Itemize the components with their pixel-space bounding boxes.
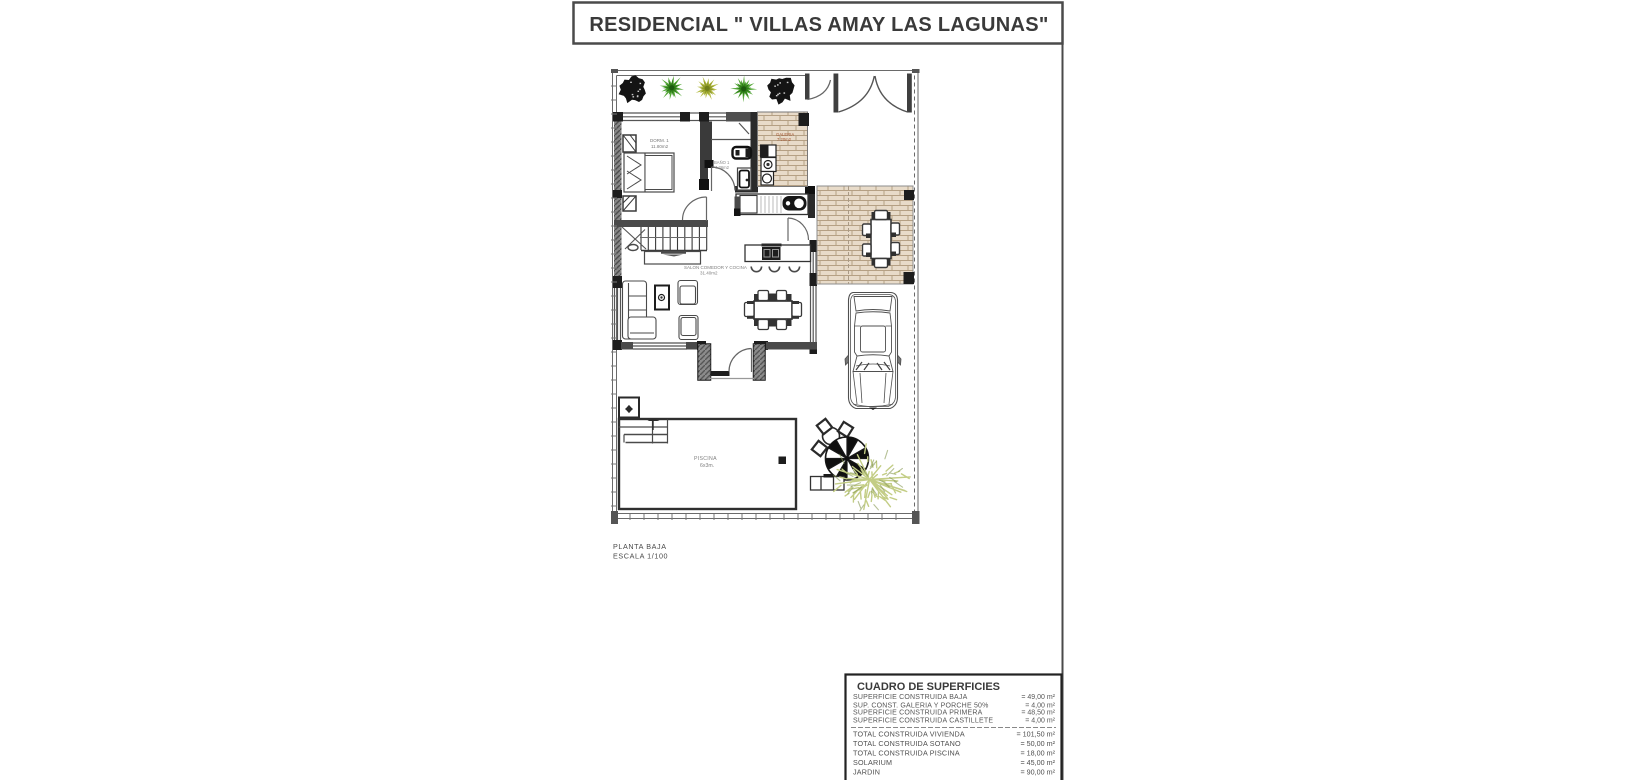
svg-text:SUPERFICIE CONSTRUIDA BAJA: SUPERFICIE CONSTRUIDA BAJA xyxy=(853,694,968,701)
svg-text:= 90,00 m²: = 90,00 m² xyxy=(1020,768,1055,777)
svg-text:= 49,00 m²: = 49,00 m² xyxy=(1021,694,1055,701)
svg-text:PLANTA BAJA: PLANTA BAJA xyxy=(613,542,667,551)
svg-text:31.40m2: 31.40m2 xyxy=(700,271,718,276)
svg-text:= 18,00 m²: = 18,00 m² xyxy=(1020,749,1055,758)
svg-text:SALON COMEDOR Y COCINA: SALON COMEDOR Y COCINA xyxy=(684,265,747,270)
svg-text:SUPERFICIE CONSTRUIDA CASTILLE: SUPERFICIE CONSTRUIDA CASTILLETE xyxy=(853,718,993,725)
svg-text:TOTAL CONSTRUIDA SOTANO: TOTAL CONSTRUIDA SOTANO xyxy=(853,739,961,748)
svg-text:= 4,00 m²: = 4,00 m² xyxy=(1025,718,1055,725)
svg-text:6x3m.: 6x3m. xyxy=(700,463,714,469)
svg-text:= 101,50 m²: = 101,50 m² xyxy=(1016,730,1055,739)
svg-text:= 4,00 m²: = 4,00 m² xyxy=(1025,703,1055,710)
svg-text:= 45,00 m²: = 45,00 m² xyxy=(1020,758,1055,767)
svg-text:CUADRO DE SUPERFICIES: CUADRO DE SUPERFICIES xyxy=(857,681,1000,693)
svg-text:ESCALA 1/100: ESCALA 1/100 xyxy=(613,552,668,561)
svg-text:SUP. CONST. GALERIA Y PORCHE 5: SUP. CONST. GALERIA Y PORCHE 50% xyxy=(853,703,989,710)
svg-text:SUPERFICIE CONSTRUIDA PRIMERA: SUPERFICIE CONSTRUIDA PRIMERA xyxy=(853,710,983,717)
svg-text:7.20m2: 7.20m2 xyxy=(777,137,792,142)
svg-text:DORM. 1: DORM. 1 xyxy=(650,138,669,143)
svg-text:SOLARIUM: SOLARIUM xyxy=(853,758,892,767)
svg-text:= 50,00 m²: = 50,00 m² xyxy=(1020,739,1055,748)
svg-text:JARDIN: JARDIN xyxy=(853,768,880,777)
svg-text:TOTAL CONSTRUIDA VIVIENDA: TOTAL CONSTRUIDA VIVIENDA xyxy=(853,730,965,739)
svg-text:RESIDENCIAL " VILLAS AMAY LAS: RESIDENCIAL " VILLAS AMAY LAS LAGUNAS" xyxy=(589,14,1048,36)
svg-text:TOTAL CONSTRUIDA PISCINA: TOTAL CONSTRUIDA PISCINA xyxy=(853,749,960,758)
svg-text:= 48,50 m²: = 48,50 m² xyxy=(1021,710,1055,717)
svg-text:11.80m2: 11.80m2 xyxy=(651,144,669,149)
svg-text:PISCINA: PISCINA xyxy=(694,456,717,462)
svg-text:4.36m2: 4.36m2 xyxy=(715,165,730,170)
